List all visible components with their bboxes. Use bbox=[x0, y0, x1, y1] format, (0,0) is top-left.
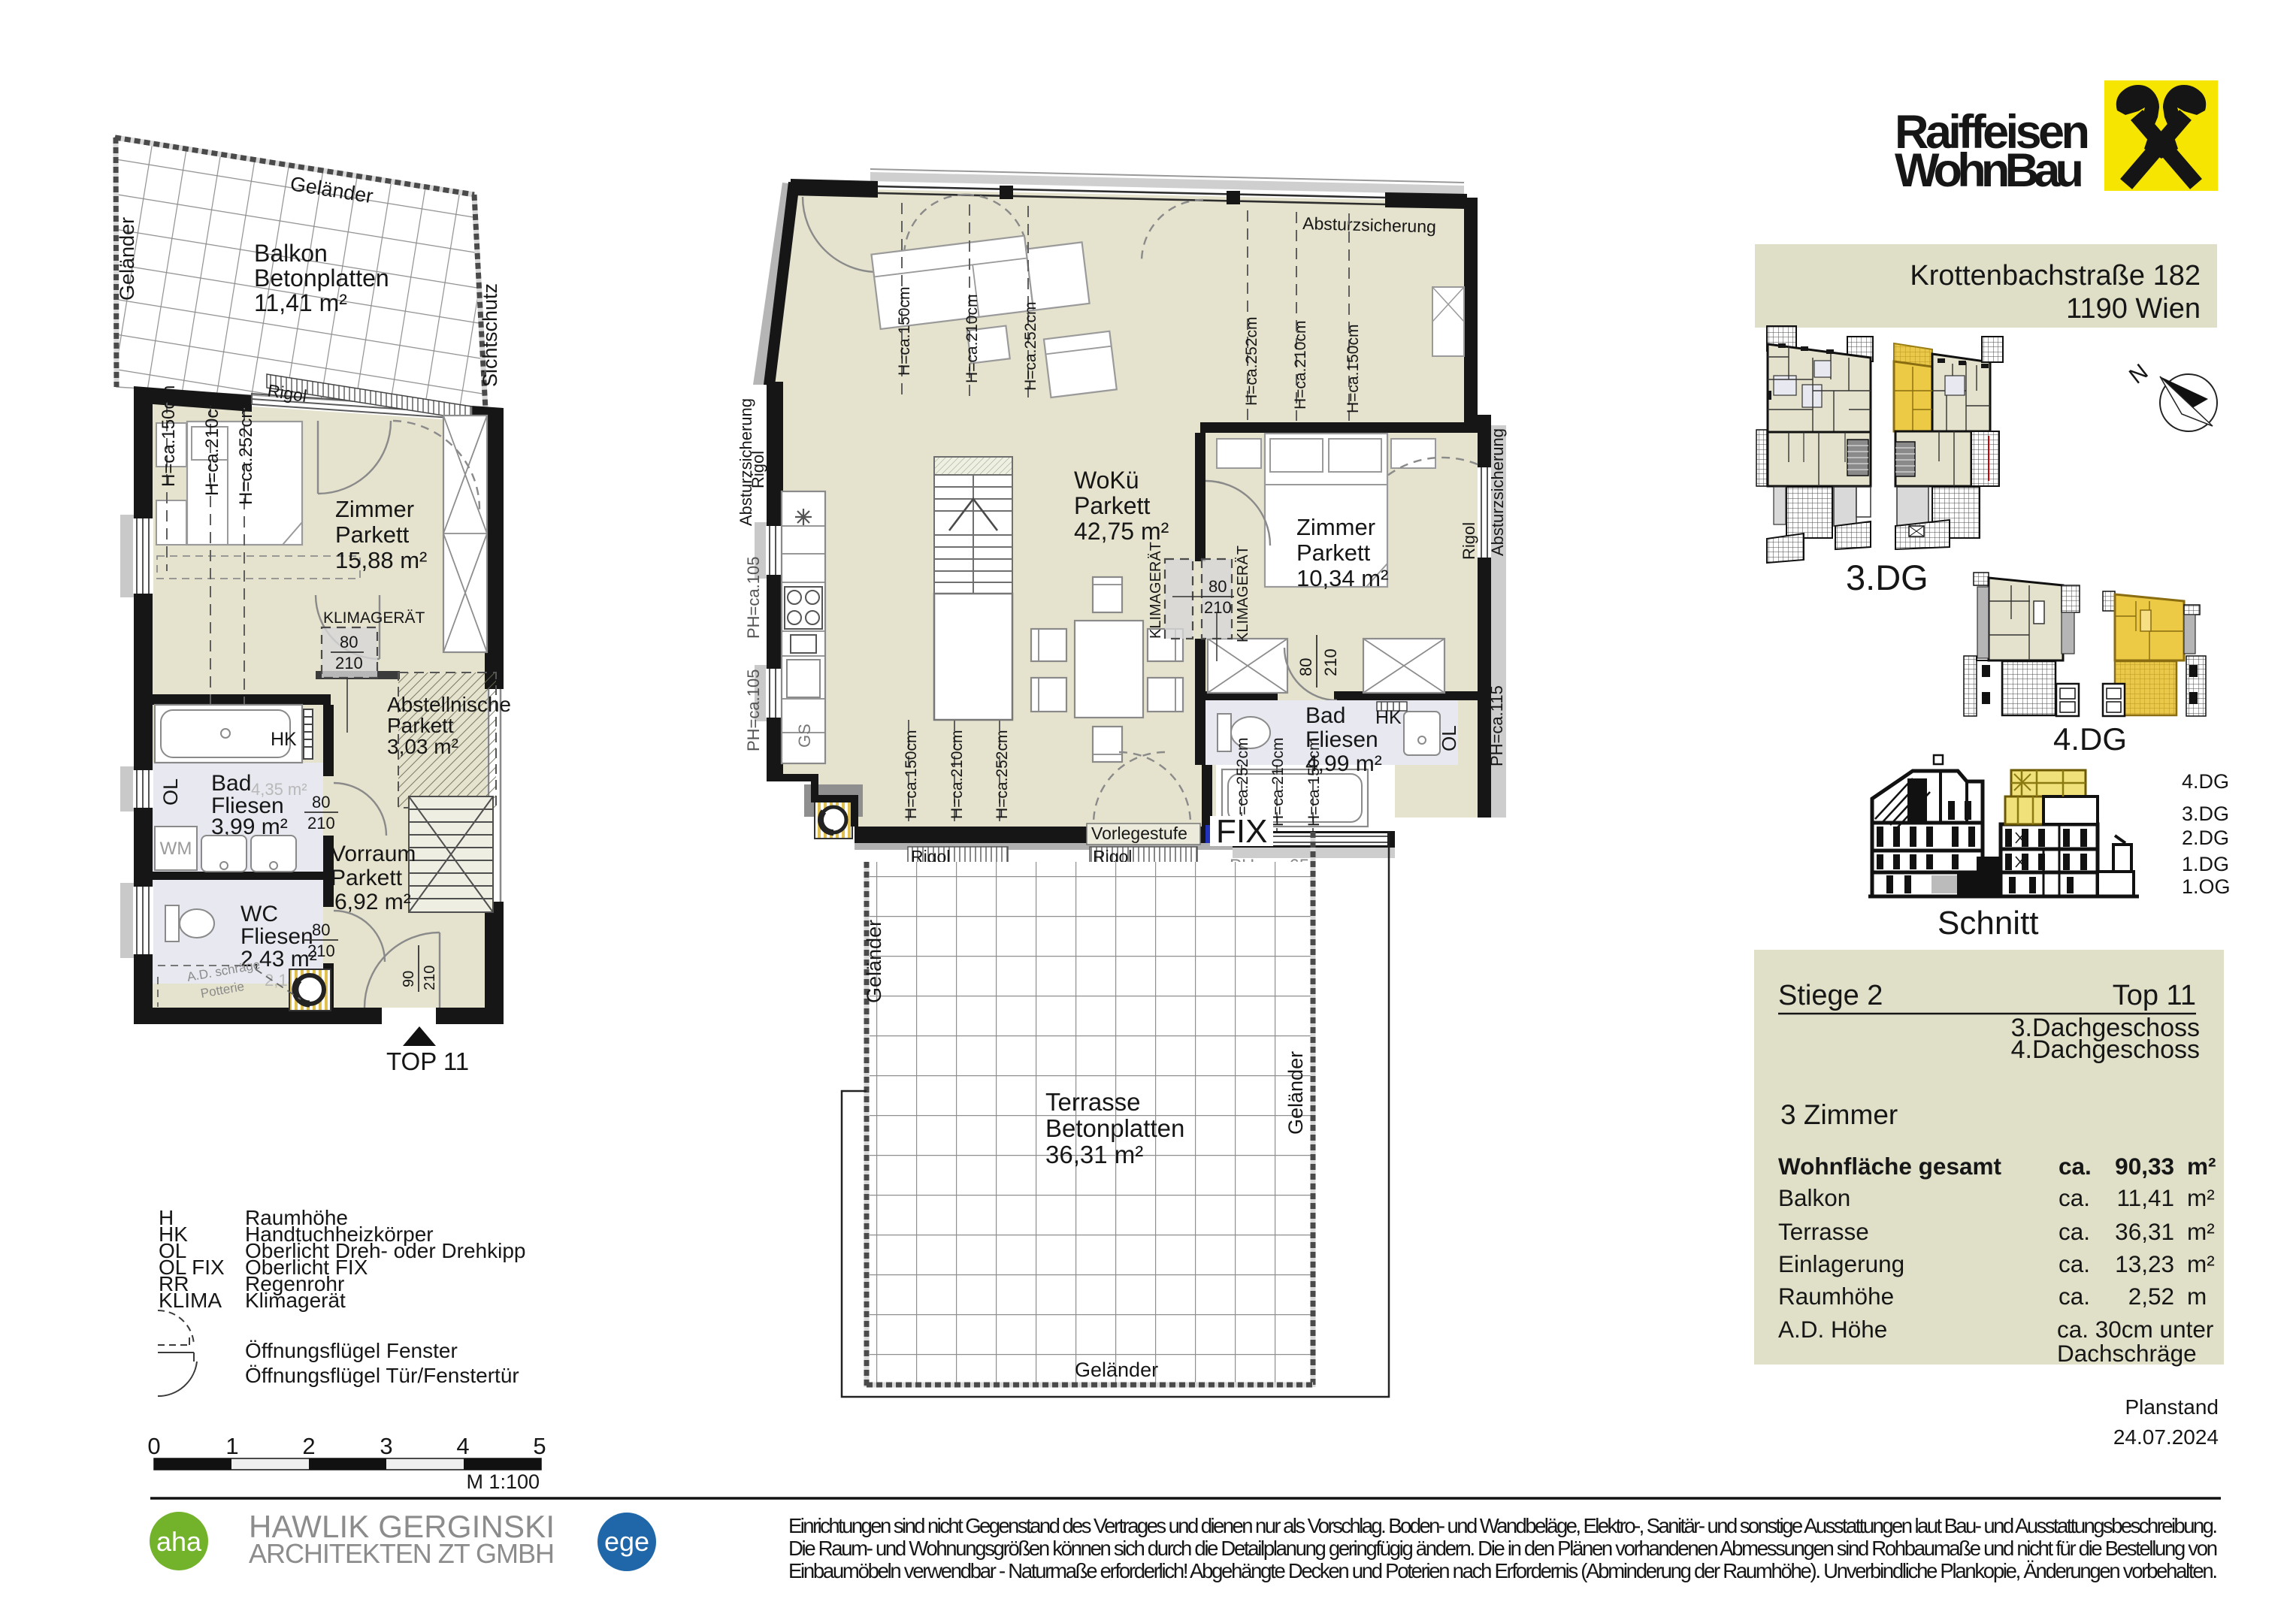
svg-text:36,31: 36,31 bbox=[2115, 1218, 2174, 1245]
svg-text:PH=ca.105: PH=ca.105 bbox=[744, 557, 763, 639]
svg-text:HK: HK bbox=[1375, 707, 1402, 728]
svg-text:GS: GS bbox=[795, 724, 814, 748]
svg-text:Sichtschutz: Sichtschutz bbox=[479, 283, 501, 387]
svg-text:H=ca.252cm: H=ca.252cm bbox=[1022, 302, 1039, 391]
svg-text:210: 210 bbox=[307, 941, 335, 960]
svg-text:H=ca.210cm: H=ca.210cm bbox=[1292, 321, 1309, 410]
svg-text:Klimagerät: Klimagerät bbox=[245, 1289, 346, 1312]
svg-text:Geländer: Geländer bbox=[1075, 1359, 1158, 1381]
svg-text:A.D. Höhe: A.D. Höhe bbox=[1778, 1316, 1887, 1343]
svg-text:Bad: Bad bbox=[1305, 703, 1345, 728]
svg-text:PH=ca.115: PH=ca.115 bbox=[1487, 685, 1506, 766]
svg-text:Abstellnische: Abstellnische bbox=[387, 693, 511, 716]
svg-text:4.DG: 4.DG bbox=[2182, 770, 2229, 793]
svg-text:HK: HK bbox=[271, 729, 297, 750]
svg-text:Zimmer: Zimmer bbox=[335, 496, 414, 522]
svg-text:80: 80 bbox=[1296, 658, 1315, 676]
svg-text:N: N bbox=[2125, 359, 2152, 388]
svg-text:Geländer: Geländer bbox=[116, 217, 138, 301]
svg-text:1.OG: 1.OG bbox=[2182, 875, 2231, 898]
svg-text:1190 Wien: 1190 Wien bbox=[2066, 293, 2201, 325]
svg-text:210: 210 bbox=[1321, 648, 1340, 676]
svg-text:10,34 m²: 10,34 m² bbox=[1296, 565, 1388, 591]
svg-text:2: 2 bbox=[302, 1433, 315, 1459]
svg-text:2.DG: 2.DG bbox=[2182, 827, 2229, 849]
svg-text:Betonplatten: Betonplatten bbox=[254, 264, 389, 292]
svg-text:H=ca.252cm: H=ca.252cm bbox=[994, 730, 1011, 819]
svg-text:WC: WC bbox=[240, 902, 278, 926]
svg-text:m²: m² bbox=[2187, 1153, 2216, 1180]
svg-text:ca.: ca. bbox=[2059, 1218, 2090, 1245]
svg-text:H=ca.210cm: H=ca.210cm bbox=[202, 394, 222, 496]
svg-text:11,41: 11,41 bbox=[2117, 1184, 2175, 1211]
svg-text:H=ca.150cm: H=ca.150cm bbox=[896, 287, 913, 376]
svg-text:Parkett: Parkett bbox=[387, 714, 454, 737]
svg-text:Balkon: Balkon bbox=[254, 240, 328, 267]
svg-text:1.DG: 1.DG bbox=[2182, 853, 2229, 875]
svg-text:13,23: 13,23 bbox=[2115, 1250, 2174, 1277]
svg-text:H=ca.210cm: H=ca.210cm bbox=[948, 730, 966, 819]
svg-text:90,33: 90,33 bbox=[2115, 1153, 2174, 1180]
svg-text:210: 210 bbox=[422, 966, 438, 990]
svg-text:ca.: ca. bbox=[2059, 1184, 2090, 1211]
svg-text:ARCHITEKTEN ZT GMBH: ARCHITEKTEN ZT GMBH bbox=[249, 1538, 556, 1569]
svg-text:M 1:100: M 1:100 bbox=[466, 1470, 540, 1493]
svg-text:Raumhöhe: Raumhöhe bbox=[1778, 1283, 1894, 1310]
svg-text:OL: OL bbox=[1438, 725, 1460, 751]
svg-text:ege: ege bbox=[604, 1526, 649, 1557]
svg-text:210: 210 bbox=[1204, 598, 1232, 617]
svg-text:aha: aha bbox=[156, 1526, 202, 1557]
svg-text:Dachschräge: Dachschräge bbox=[2057, 1340, 2197, 1367]
svg-text:3.DG: 3.DG bbox=[2182, 802, 2229, 825]
svg-text:Rigol: Rigol bbox=[749, 451, 767, 488]
svg-text:Bad: Bad bbox=[211, 771, 251, 796]
svg-text:Rigol: Rigol bbox=[1460, 522, 1478, 560]
svg-text:KLIMAGERÄT: KLIMAGERÄT bbox=[1235, 546, 1251, 642]
svg-text:FIX: FIX bbox=[1216, 813, 1267, 850]
svg-text:ca.: ca. bbox=[2059, 1250, 2090, 1277]
svg-text:Die Raum- und Wohnungsgrößen k: Die Raum- und Wohnungsgrößen können sich… bbox=[788, 1537, 2218, 1560]
svg-text:H=ca.150cm: H=ca.150cm bbox=[1305, 738, 1323, 827]
svg-text:H=ca.252cm: H=ca.252cm bbox=[236, 403, 256, 505]
svg-text:3,03 m²: 3,03 m² bbox=[387, 735, 458, 758]
svg-text:Top 11: Top 11 bbox=[2113, 980, 2196, 1011]
svg-text:Wohnfläche gesamt: Wohnfläche gesamt bbox=[1778, 1153, 2001, 1180]
svg-text:Parkett: Parkett bbox=[335, 521, 410, 548]
svg-text:Geländer: Geländer bbox=[1284, 1051, 1307, 1135]
svg-text:80: 80 bbox=[312, 793, 330, 811]
svg-text:Öffnungsflügel Tür/Fenstertür: Öffnungsflügel Tür/Fenstertür bbox=[245, 1364, 519, 1387]
svg-text:ca.: ca. bbox=[2059, 1153, 2092, 1180]
svg-text:WohnBau: WohnBau bbox=[1895, 144, 2083, 197]
svg-text:4: 4 bbox=[456, 1433, 469, 1459]
svg-text:2,52: 2,52 bbox=[2128, 1283, 2174, 1310]
svg-text:Parkett: Parkett bbox=[331, 866, 403, 890]
svg-text:m²: m² bbox=[2187, 1184, 2215, 1211]
svg-text:3.DG: 3.DG bbox=[1846, 558, 1928, 597]
svg-text:m²: m² bbox=[2187, 1218, 2215, 1245]
svg-text:90: 90 bbox=[401, 971, 417, 987]
svg-text:4,35 m²: 4,35 m² bbox=[251, 780, 307, 799]
svg-text:Stiege 2: Stiege 2 bbox=[1778, 980, 1883, 1011]
svg-text:KLIMAGERÄT: KLIMAGERÄT bbox=[1148, 542, 1164, 639]
svg-text:3 Zimmer: 3 Zimmer bbox=[1780, 1099, 1898, 1130]
svg-text:Vorraum: Vorraum bbox=[331, 842, 416, 866]
svg-text:Parkett: Parkett bbox=[1296, 539, 1371, 566]
svg-text:0: 0 bbox=[147, 1433, 160, 1459]
svg-text:Einlagerung: Einlagerung bbox=[1778, 1250, 1904, 1277]
svg-text:80: 80 bbox=[312, 920, 330, 939]
svg-text:Krottenbachstraße 182: Krottenbachstraße 182 bbox=[1910, 260, 2201, 292]
svg-text:Absturzsicherung: Absturzsicherung bbox=[1488, 428, 1507, 556]
svg-text:Terrasse: Terrasse bbox=[1778, 1218, 1869, 1245]
svg-text:Einrichtungen sind nicht Gegen: Einrichtungen sind nicht Gegenstand des … bbox=[788, 1514, 2218, 1537]
svg-text:m: m bbox=[2187, 1283, 2207, 1310]
svg-text:24.07.2024: 24.07.2024 bbox=[2113, 1425, 2219, 1449]
svg-text:H=ca.150cm: H=ca.150cm bbox=[159, 385, 179, 487]
svg-text:1: 1 bbox=[225, 1433, 238, 1459]
svg-text:42,75 m²: 42,75 m² bbox=[1074, 518, 1169, 545]
svg-text:H=ca.210cm: H=ca.210cm bbox=[963, 295, 981, 383]
svg-text:210: 210 bbox=[307, 814, 335, 833]
svg-text:H=ca.150cm: H=ca.150cm bbox=[903, 730, 920, 819]
svg-text:m²: m² bbox=[2187, 1250, 2215, 1277]
svg-text:KLIMAGERÄT: KLIMAGERÄT bbox=[323, 609, 425, 627]
svg-text:80: 80 bbox=[340, 633, 358, 651]
svg-text:WM: WM bbox=[160, 839, 192, 859]
svg-text:5: 5 bbox=[533, 1433, 546, 1459]
svg-text:Terrasse: Terrasse bbox=[1045, 1088, 1141, 1116]
svg-text:4.Dachgeschoss: 4.Dachgeschoss bbox=[2011, 1035, 2200, 1064]
svg-text:Schnitt: Schnitt bbox=[1938, 905, 2039, 941]
svg-text:Vorlegestufe: Vorlegestufe bbox=[1091, 824, 1187, 843]
svg-text:H=ca.150cm: H=ca.150cm bbox=[1345, 325, 1362, 413]
svg-text:6,92 m²: 6,92 m² bbox=[334, 890, 411, 914]
svg-text:11,41 m²: 11,41 m² bbox=[254, 289, 347, 316]
svg-text:OL: OL bbox=[159, 778, 182, 805]
svg-text:ca.: ca. bbox=[2059, 1283, 2090, 1310]
svg-text:PH=ca.105: PH=ca.105 bbox=[744, 669, 763, 751]
svg-text:Zimmer: Zimmer bbox=[1296, 514, 1375, 540]
svg-text:Betonplatten: Betonplatten bbox=[1045, 1114, 1184, 1142]
svg-text:H=ca.252cm: H=ca.252cm bbox=[1243, 317, 1260, 406]
svg-text:Parkett: Parkett bbox=[1074, 492, 1150, 519]
svg-text:36,31 m²: 36,31 m² bbox=[1045, 1141, 1143, 1168]
svg-text:TOP 11: TOP 11 bbox=[386, 1047, 469, 1075]
svg-text:15,88 m²: 15,88 m² bbox=[335, 547, 427, 573]
svg-text:4.DG: 4.DG bbox=[2053, 721, 2127, 757]
svg-text:Fliesen: Fliesen bbox=[240, 924, 313, 949]
svg-text:3: 3 bbox=[380, 1433, 392, 1459]
svg-text:Balkon: Balkon bbox=[1778, 1184, 1850, 1211]
svg-text:H=ca.210cm: H=ca.210cm bbox=[1269, 738, 1287, 827]
svg-text:Planstand: Planstand bbox=[2125, 1395, 2219, 1419]
svg-text:WoKü: WoKü bbox=[1074, 467, 1139, 494]
svg-text:Einbaumöbeln verwendbar - Natu: Einbaumöbeln verwendbar - Naturmaße erfo… bbox=[788, 1559, 2218, 1582]
svg-text:210: 210 bbox=[335, 654, 363, 672]
svg-text:KLIMA: KLIMA bbox=[159, 1289, 222, 1312]
svg-text:80: 80 bbox=[1209, 577, 1227, 596]
svg-text:Geländer: Geländer bbox=[863, 920, 885, 1003]
svg-text:ca. 30cm unter: ca. 30cm unter bbox=[2057, 1316, 2213, 1343]
svg-text:Absturzsicherung: Absturzsicherung bbox=[1302, 213, 1436, 237]
svg-text:Öffnungsflügel Fenster: Öffnungsflügel Fenster bbox=[245, 1339, 458, 1362]
